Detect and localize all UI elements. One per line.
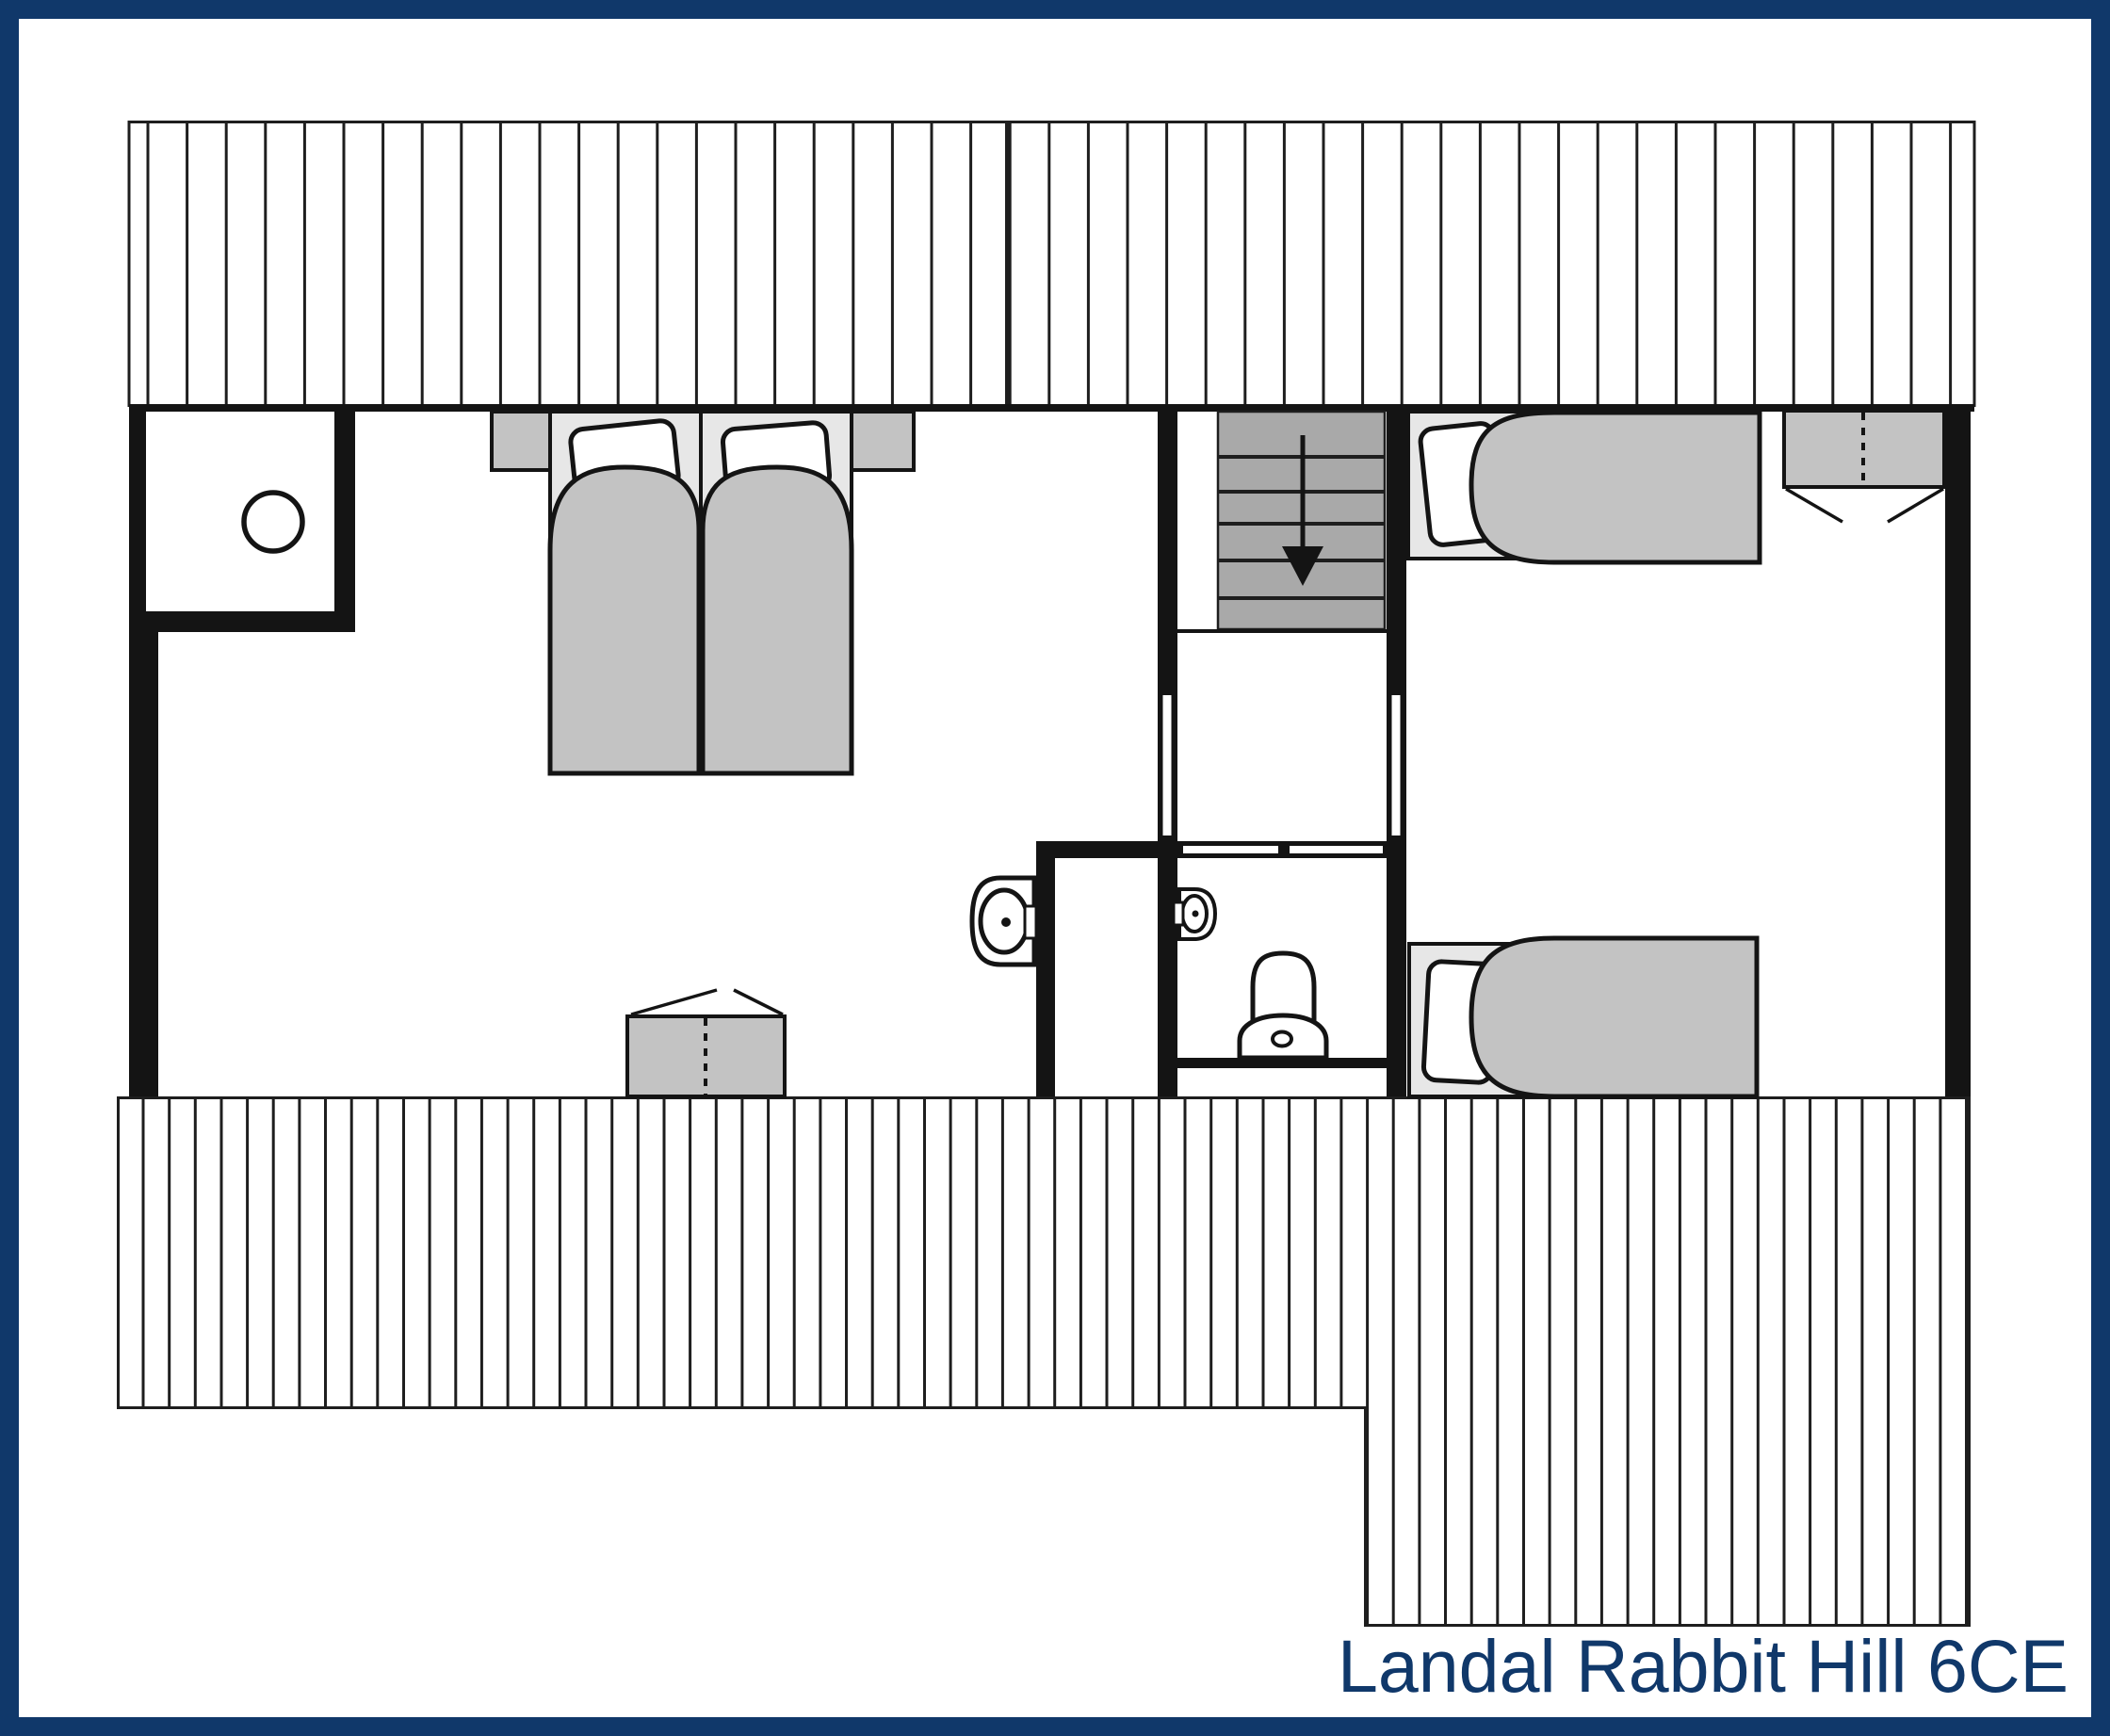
svg-text:Landal Rabbit Hill 6CE: Landal Rabbit Hill 6CE (1338, 1624, 2069, 1708)
